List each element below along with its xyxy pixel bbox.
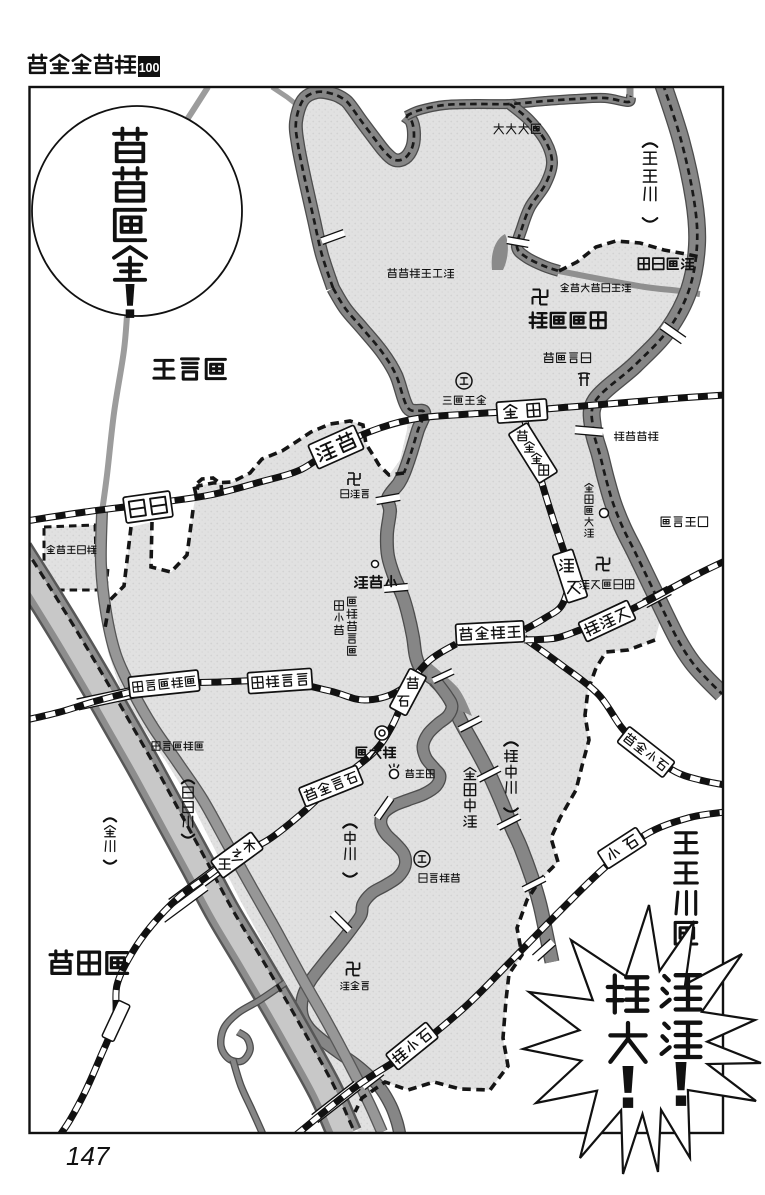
svg-text:147: 147 bbox=[66, 1141, 111, 1171]
svg-text:100: 100 bbox=[139, 61, 160, 75]
